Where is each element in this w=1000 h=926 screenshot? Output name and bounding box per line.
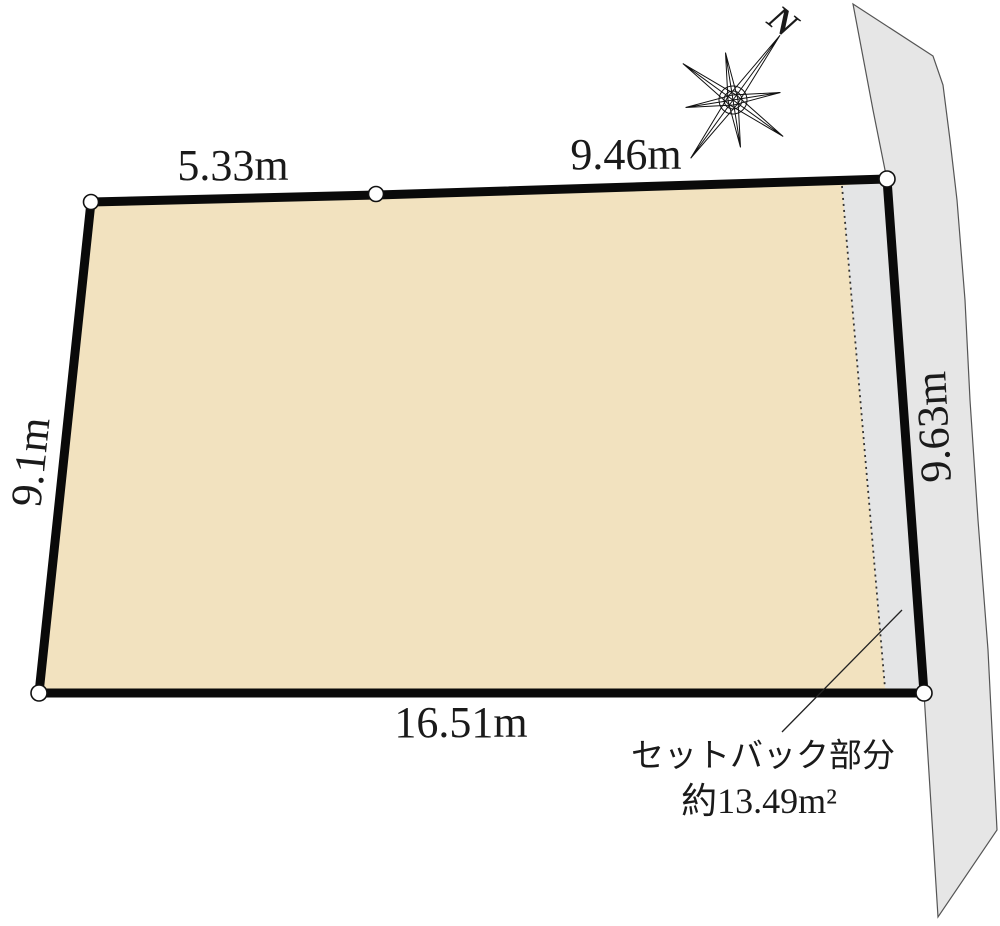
dimension-label-bottom-edge: 16.51m — [394, 701, 527, 745]
survey-drawing — [0, 0, 1000, 926]
setback-caption-title: セットバック部分 — [631, 741, 895, 774]
vertex-marker-bottom-left — [31, 685, 47, 701]
vertex-marker-top-left — [84, 195, 99, 210]
dimension-label-top-left-edge: 5.33m — [177, 144, 288, 188]
vertex-marker-top-right — [879, 171, 895, 187]
plot-area — [39, 179, 924, 693]
setback-caption-area: 約13.49m² — [681, 783, 837, 819]
dimension-label-top-right-edge: 9.46m — [570, 133, 681, 177]
vertex-marker-top-mid — [369, 187, 384, 202]
dimension-label-left-edge: 9.1m — [4, 415, 57, 508]
land-survey-diagram: 5.33m 9.46m 9.1m 9.63m 16.51m N セットバック部分… — [0, 0, 1000, 926]
dimension-label-right-edge: 9.63m — [909, 370, 959, 483]
vertex-marker-bottom-right — [916, 685, 932, 701]
